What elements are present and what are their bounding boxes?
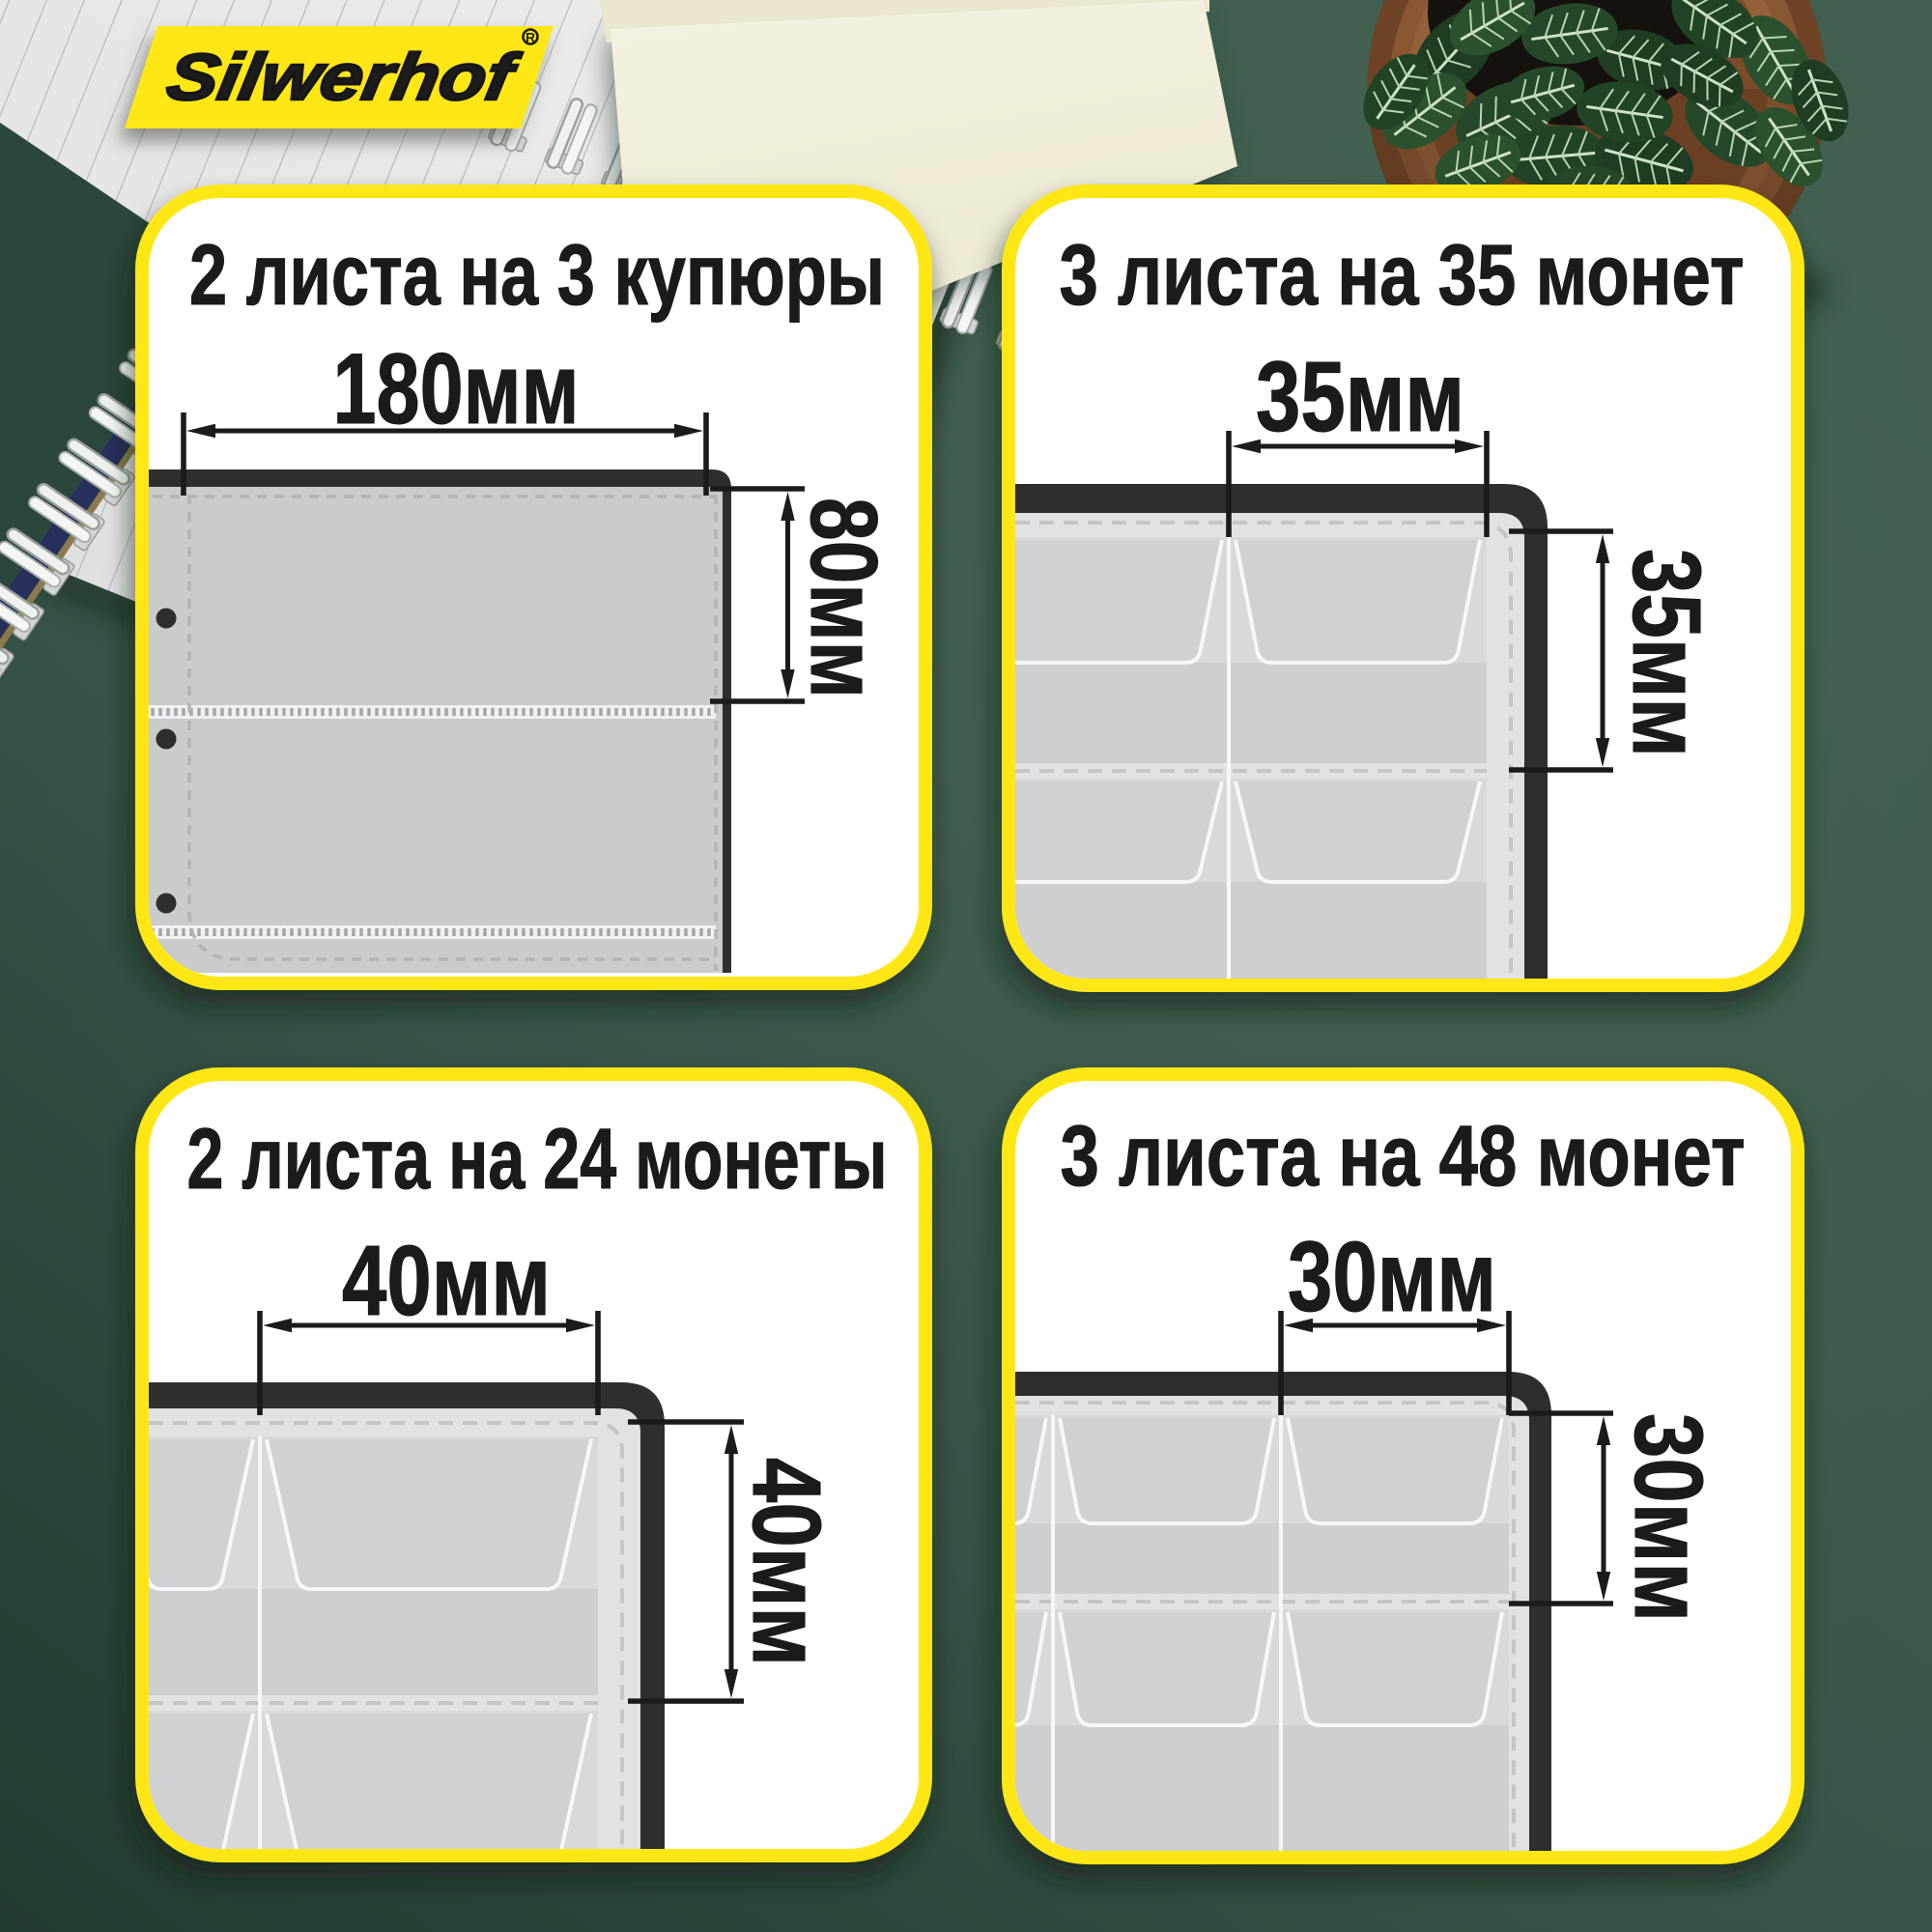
svg-text:40мм: 40мм bbox=[732, 1458, 840, 1666]
svg-text:Silwerhof: Silwerhof bbox=[161, 40, 526, 113]
svg-text:2 листа на 3 купюры: 2 листа на 3 купюры bbox=[189, 226, 885, 323]
svg-text:80мм: 80мм bbox=[791, 497, 897, 698]
svg-text:3 листа на 35 монет: 3 листа на 35 монет bbox=[1060, 226, 1745, 323]
svg-text:35мм: 35мм bbox=[1612, 549, 1720, 757]
svg-text:30мм: 30мм bbox=[1288, 1221, 1496, 1332]
svg-text:3 листа на 48 монет: 3 листа на 48 монет bbox=[1061, 1107, 1746, 1204]
svg-text:30мм: 30мм bbox=[1614, 1413, 1722, 1622]
svg-text:35мм: 35мм bbox=[1256, 341, 1464, 452]
svg-text:R: R bbox=[526, 30, 535, 45]
svg-text:2 листа на 24 монеты: 2 листа на 24 монеты bbox=[187, 1110, 888, 1207]
svg-text:40мм: 40мм bbox=[342, 1225, 551, 1336]
